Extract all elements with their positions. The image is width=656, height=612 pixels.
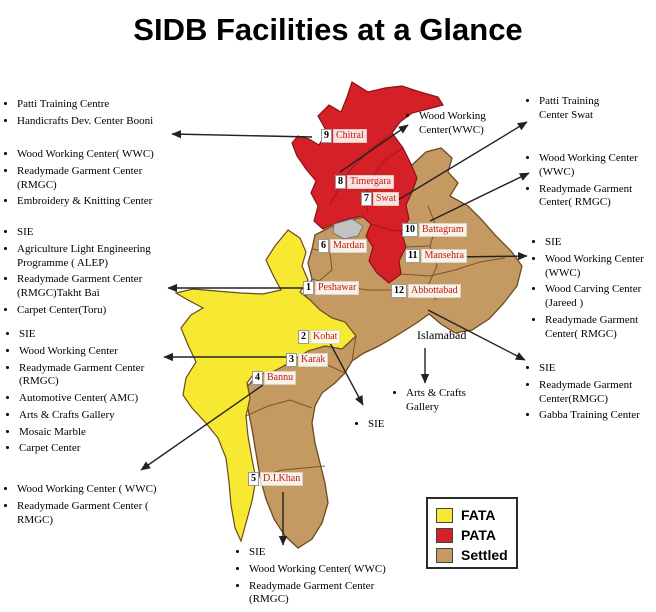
facility-item: Wood Working Center ( WWC) xyxy=(17,483,172,497)
facility-item: Gabba Training Center xyxy=(539,409,652,423)
facility-item: Wood Working Center( WWC) xyxy=(17,148,176,162)
note-dikhan: SIEWood Working Center( WWC)Readymade Ga… xyxy=(236,546,414,610)
district-label-bannu: 4Bannu xyxy=(252,371,296,385)
district-label-dikhan: 5D.I.Khan xyxy=(248,472,303,486)
facility-item: Handicrafts Dev. Center Booni xyxy=(17,115,172,129)
district-label-timergara: 8Timergara xyxy=(335,175,394,189)
legend-label-pata: PATA xyxy=(461,527,496,543)
facility-item: Readymade Garment Center (RMGC)Takht Bai xyxy=(17,273,174,301)
facility-item: Arts & Crafts Gallery xyxy=(19,409,178,423)
note-mansehra: SIEWood Working Center (WWC)Wood Carving… xyxy=(532,236,652,344)
district-label-chitral: 9Chitral xyxy=(321,129,367,143)
pata-color-swatch xyxy=(436,528,453,543)
district-label-battagram: 10Battagram xyxy=(402,223,467,237)
infographic-page: SIDB Facilities at a Glance Patti Traini… xyxy=(0,0,656,612)
facility-item: Wood Working Center (WWC) xyxy=(545,253,652,281)
legend-row-pata: PATA xyxy=(436,525,516,545)
facility-item: Readymade Garment Center( RMGC) xyxy=(545,314,652,342)
facility-item: SIE xyxy=(19,328,178,342)
facility-item: Readymade Garment Center( RMGC) xyxy=(539,183,648,211)
facility-item: Wood Working Center xyxy=(19,345,178,359)
facility-item: Wood Working Center( WWC) xyxy=(249,563,414,577)
note-chitral-booni: Patti Training CentreHandicrafts Dev. Ce… xyxy=(4,98,172,132)
note-abbottabad: SIEReadymade Garment Center(RMGC)Gabba T… xyxy=(526,362,652,426)
note-swat: Patti Training Center Swat xyxy=(526,95,630,126)
facility-item: Readymade Garment Center (RMGC) xyxy=(17,165,176,193)
facility-item: Readymade Garment Center (RMGC) xyxy=(19,362,178,390)
note-timergara: Wood Working Center(WWC) xyxy=(406,110,514,141)
facility-item: Agriculture Light Engineering Programme … xyxy=(17,243,174,271)
facility-item: Patti Training Center Swat xyxy=(539,95,630,123)
district-label-abbottabad: 12Abbottabad xyxy=(391,284,461,298)
facility-item: SIE xyxy=(539,362,652,376)
note-battagram: Wood Working Center (WWC)Readymade Garme… xyxy=(526,152,648,213)
facility-item: Wood Working Center(WWC) xyxy=(419,110,514,138)
settled-color-swatch xyxy=(436,548,453,563)
map-legend: FATA PATA Settled xyxy=(426,497,518,569)
note-islamabad: Arts & Crafts Gallery xyxy=(393,387,485,418)
legend-label-fata: FATA xyxy=(461,507,495,523)
facility-item: SIE xyxy=(17,226,174,240)
district-label-kohat: 2Kohat xyxy=(298,330,340,344)
facility-item: SIE xyxy=(249,546,414,560)
facility-item: Arts & Crafts Gallery xyxy=(406,387,485,415)
district-label-mansehra: 11Mansehra xyxy=(405,249,467,263)
facility-item: Readymade Garment Center ( RMGC) xyxy=(17,500,172,528)
facility-item: Carpet Center(Toru) xyxy=(17,304,174,318)
district-label-karak: 3Karak xyxy=(286,353,328,367)
facility-item: Mosaic Marble xyxy=(19,426,178,440)
facility-item: SIE xyxy=(368,418,415,432)
note-kohat-sie: SIE xyxy=(355,418,415,435)
facility-item: Patti Training Centre xyxy=(17,98,172,112)
islamabad-label: Islamabad xyxy=(417,328,466,343)
facility-item: Readymade Garment Center(RMGC) xyxy=(539,379,652,407)
facility-item: Wood Working Center (WWC) xyxy=(539,152,648,180)
facility-item: Readymade Garment Center (RMGC) xyxy=(249,580,414,608)
fata-color-swatch xyxy=(436,508,453,523)
note-chitral-centers: Wood Working Center( WWC)Readymade Garme… xyxy=(4,148,176,212)
page-title: SIDB Facilities at a Glance xyxy=(0,12,656,48)
legend-row-fata: FATA xyxy=(436,505,516,525)
facility-item: Embroidery & Knitting Center xyxy=(17,195,176,209)
legend-row-settled: Settled xyxy=(436,545,516,565)
note-bannu: Wood Working Center ( WWC)Readymade Garm… xyxy=(4,483,172,530)
note-kohat-karak: SIEWood Working CenterReadymade Garment … xyxy=(6,328,178,459)
district-label-swat: 7Swat xyxy=(361,192,399,206)
facility-item: SIE xyxy=(545,236,652,250)
facility-item: Carpet Center xyxy=(19,442,178,456)
legend-label-settled: Settled xyxy=(461,547,508,563)
note-peshawar: SIEAgriculture Light Engineering Program… xyxy=(4,226,174,321)
facility-item: Automotive Center( AMC) xyxy=(19,392,178,406)
facility-item: Wood Carving Center (Jareed ) xyxy=(545,283,652,311)
district-label-mardan: 6Mardan xyxy=(318,239,367,253)
district-label-peshawar: 1Peshawar xyxy=(303,281,359,295)
